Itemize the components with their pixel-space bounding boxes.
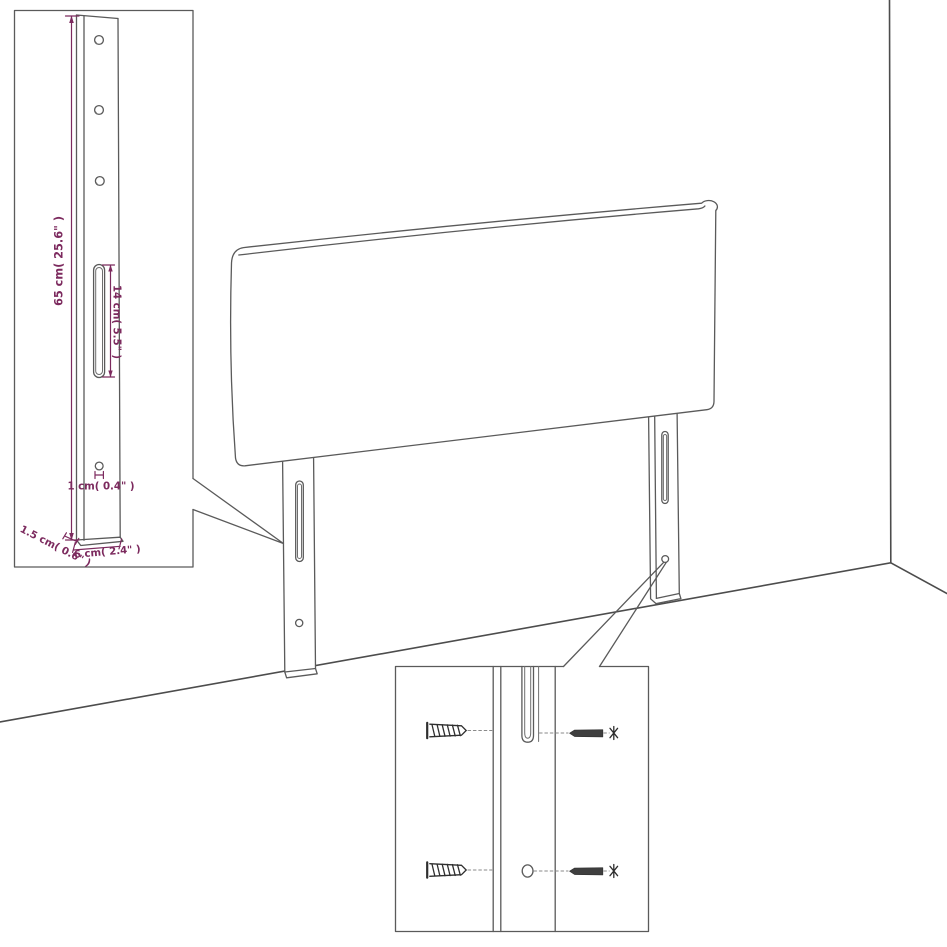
wall-corner-line — [890, 0, 891, 563]
label-hole-diameter: 1 cm( 0.4" ) — [67, 482, 134, 493]
label-slot-length: 14 cm( 5.5" ) — [111, 285, 122, 359]
diagram-canvas: 65 cm( 25.6" ) 14 cm( 5.5" ) 1 cm( 0.4" … — [0, 0, 947, 947]
assembly-diagram: 65 cm( 25.6" ) 14 cm( 5.5" ) 1 cm( 0.4" … — [0, 0, 947, 947]
headboard-panel — [231, 201, 718, 466]
machine-screw-bottom-body — [570, 868, 603, 875]
screws-inset — [396, 562, 667, 931]
headboard-outline — [231, 201, 718, 466]
headboard-left-leg — [283, 449, 318, 678]
left-leg-body — [283, 449, 318, 678]
machine-screw-top-body — [570, 730, 603, 737]
floor-line-right — [891, 563, 947, 594]
dimension-callout-lines — [193, 479, 283, 544]
label-leg-height: 65 cm( 25.6" ) — [53, 216, 66, 306]
